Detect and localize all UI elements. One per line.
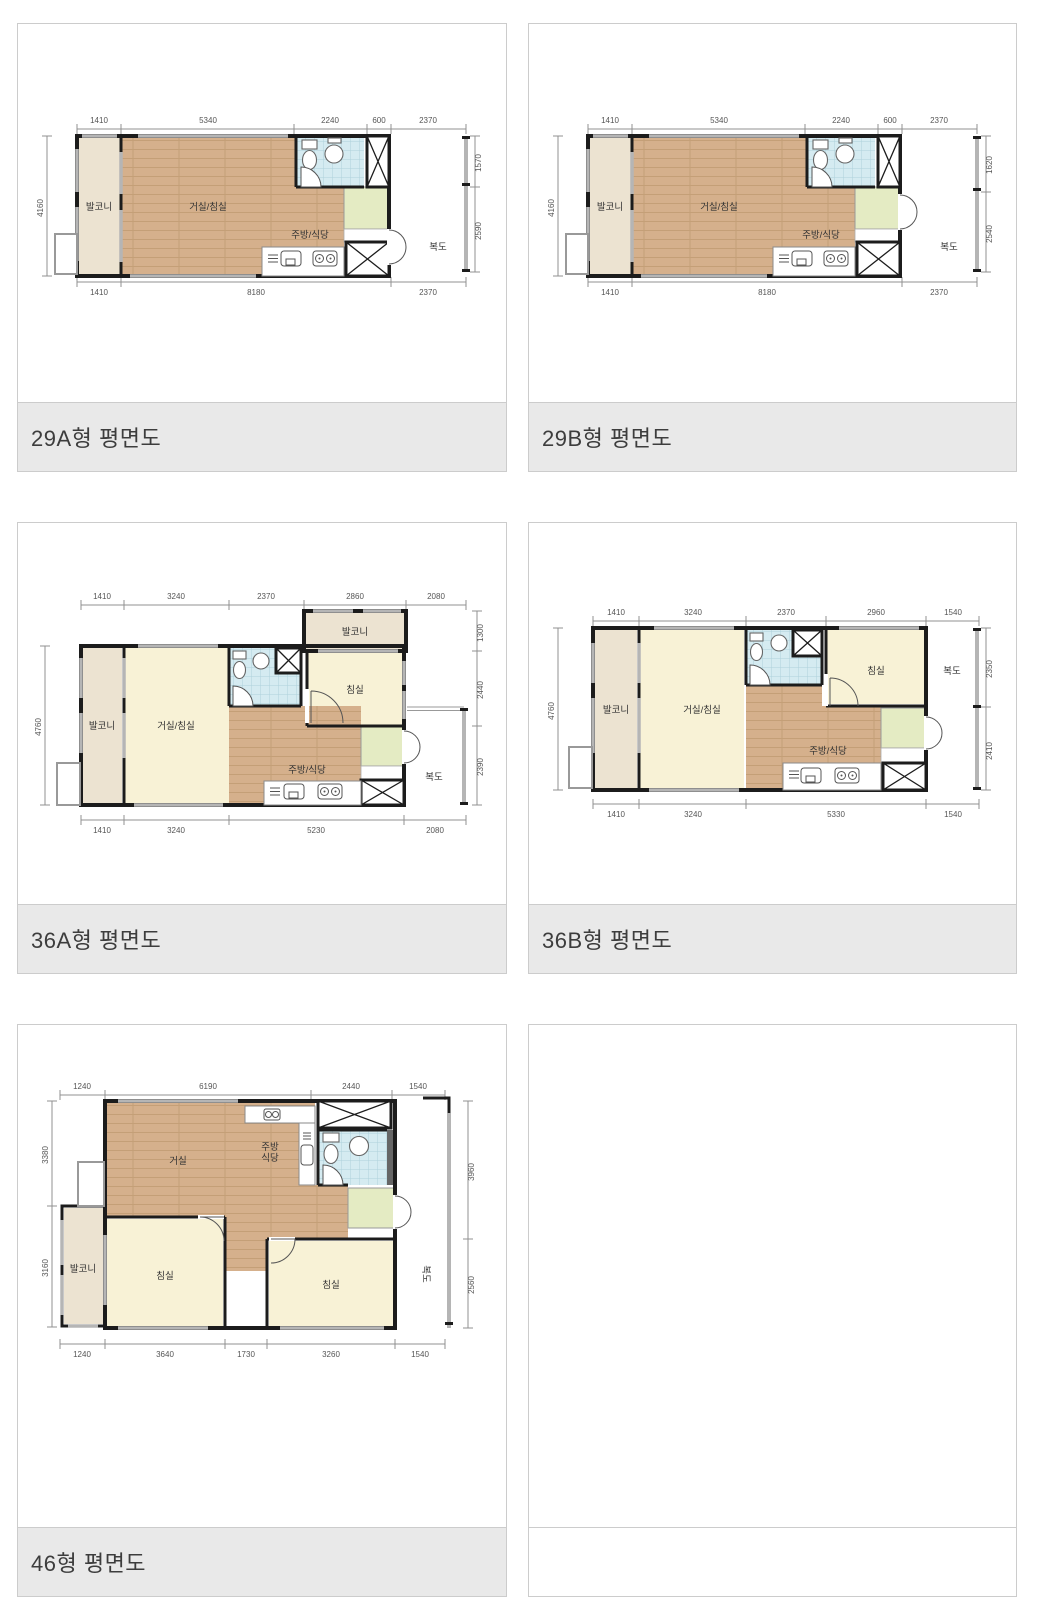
plan-caption-29b: 29B형 평면도 bbox=[529, 402, 1016, 471]
svg-text:2860: 2860 bbox=[346, 592, 364, 601]
room-label-kitchen: 주방/식당 bbox=[288, 765, 326, 776]
svg-text:1300: 1300 bbox=[476, 624, 485, 642]
room-label-bedroom1: 침실 bbox=[156, 1271, 173, 1282]
svg-text:1540: 1540 bbox=[944, 810, 962, 819]
corridor-wall bbox=[462, 136, 470, 272]
svg-text:2960: 2960 bbox=[867, 608, 885, 617]
dim-bottom: 1410 3240 5230 2080 bbox=[81, 815, 466, 835]
toilet-icon bbox=[750, 633, 763, 661]
dim-top: 1410 5340 2240 600 2370 bbox=[77, 116, 466, 134]
dim-left: 4160 bbox=[36, 136, 52, 276]
plan-image-36a: 1410 3240 2370 2860 2080 1410 3240 5230 … bbox=[18, 523, 506, 904]
svg-text:1410: 1410 bbox=[607, 810, 625, 819]
entry-step bbox=[344, 229, 389, 242]
svg-text:5330: 5330 bbox=[827, 810, 845, 819]
dim-bottom: 1410 3240 5330 1540 bbox=[593, 799, 979, 819]
kitchen-counter bbox=[783, 763, 881, 790]
svg-text:4760: 4760 bbox=[34, 718, 43, 736]
svg-text:2590: 2590 bbox=[474, 222, 483, 240]
dim-right: 2350 2410 bbox=[981, 628, 994, 790]
room-label-bedroom: 침실 bbox=[867, 666, 884, 677]
svg-text:5230: 5230 bbox=[307, 826, 325, 835]
dim-bottom: 1240 3640 1730 3260 1540 bbox=[60, 1339, 445, 1359]
dim-left: 3380 3160 bbox=[41, 1101, 57, 1327]
room-label-living: 거실/침실 bbox=[189, 202, 227, 213]
svg-text:2440: 2440 bbox=[476, 681, 485, 699]
room-label-balcony: 발코니 bbox=[86, 202, 112, 213]
floor-plan-46: 1240 6190 2440 1540 1240 3640 1730 3260 … bbox=[18, 1025, 506, 1527]
ac-unit-box bbox=[569, 747, 592, 788]
plan-image-46: 1240 6190 2440 1540 1240 3640 1730 3260 … bbox=[18, 1025, 506, 1527]
plan-card-46: 1240 6190 2440 1540 1240 3640 1730 3260 … bbox=[17, 1024, 507, 1597]
svg-text:1540: 1540 bbox=[411, 1350, 429, 1359]
svg-text:1410: 1410 bbox=[90, 288, 108, 297]
washbasin-icon bbox=[253, 653, 269, 669]
room-label-living: 거실/침실 bbox=[157, 721, 195, 732]
dim-right: 3960 2560 bbox=[463, 1101, 476, 1328]
room-label-bedroom2: 침실 bbox=[322, 1280, 339, 1291]
svg-text:2370: 2370 bbox=[419, 288, 437, 297]
svg-text:2240: 2240 bbox=[832, 116, 850, 125]
kitchen-counter bbox=[773, 247, 855, 276]
room-label-corridor: 복도 bbox=[943, 666, 961, 677]
wall-notch bbox=[78, 1162, 104, 1206]
dim-bottom: 1410 8180 2370 bbox=[588, 277, 977, 297]
svg-text:5340: 5340 bbox=[199, 116, 217, 125]
svg-text:1410: 1410 bbox=[93, 592, 111, 601]
corridor-wall bbox=[973, 136, 981, 272]
room-label-living: 거실/침실 bbox=[683, 705, 721, 716]
toilet-icon bbox=[323, 1133, 339, 1164]
empty-caption bbox=[529, 1527, 1016, 1596]
svg-text:2410: 2410 bbox=[985, 742, 994, 760]
kitchen-counter bbox=[264, 781, 361, 805]
room-label-kitchen-1: 주방 bbox=[261, 1142, 279, 1153]
room-label-corridor: 복도 bbox=[425, 772, 443, 783]
entry-step bbox=[881, 748, 926, 763]
dim-top: 1410 5340 2240 600 2370 bbox=[588, 116, 977, 134]
room-label-bedroom: 침실 bbox=[346, 685, 363, 696]
svg-text:1410: 1410 bbox=[601, 116, 619, 125]
floor-plan-29b: 1410 5340 2240 600 2370 1410 8180 2370 4… bbox=[529, 24, 1016, 402]
room-label-balcony: 발코니 bbox=[597, 202, 623, 213]
washbasin-icon bbox=[325, 138, 343, 163]
plan-image-36b: 1410 3240 2370 2960 1540 1410 3240 5330 … bbox=[529, 523, 1016, 904]
dim-right: 1620 2540 bbox=[981, 136, 994, 272]
svg-text:2370: 2370 bbox=[777, 608, 795, 617]
svg-text:2370: 2370 bbox=[930, 288, 948, 297]
dim-bottom: 1410 8180 2370 bbox=[77, 277, 466, 297]
svg-text:6190: 6190 bbox=[199, 1082, 217, 1091]
entry-step bbox=[855, 229, 900, 242]
washbasin-icon bbox=[836, 138, 854, 163]
ac-unit-box bbox=[566, 234, 588, 274]
dim-top: 1410 3240 2370 2960 1540 bbox=[593, 608, 979, 626]
svg-text:3240: 3240 bbox=[167, 592, 185, 601]
plan-caption-36a: 36A형 평면도 bbox=[18, 904, 506, 973]
svg-text:2370: 2370 bbox=[419, 116, 437, 125]
svg-text:1730: 1730 bbox=[237, 1350, 255, 1359]
svg-text:1410: 1410 bbox=[90, 116, 108, 125]
plan-caption-29a: 29A형 평면도 bbox=[18, 402, 506, 471]
svg-text:4160: 4160 bbox=[547, 199, 556, 217]
entry-door-icon bbox=[393, 1195, 411, 1229]
ac-unit-box bbox=[57, 763, 80, 805]
svg-text:3160: 3160 bbox=[41, 1259, 50, 1277]
toilet-icon bbox=[302, 140, 317, 170]
entry-floor bbox=[855, 187, 900, 229]
svg-text:8180: 8180 bbox=[758, 288, 776, 297]
svg-text:2370: 2370 bbox=[257, 592, 275, 601]
svg-text:1410: 1410 bbox=[601, 288, 619, 297]
svg-text:2540: 2540 bbox=[985, 225, 994, 243]
entry-floor bbox=[348, 1188, 395, 1228]
svg-text:4760: 4760 bbox=[547, 702, 556, 720]
svg-text:3240: 3240 bbox=[167, 826, 185, 835]
svg-text:3960: 3960 bbox=[467, 1163, 476, 1181]
plan-card-29a: 1410 5340 2240 600 2370 1410 8180 2370 4… bbox=[17, 23, 507, 472]
room-label-balcony: 발코니 bbox=[89, 721, 115, 732]
svg-text:2440: 2440 bbox=[342, 1082, 360, 1091]
empty-plan-area bbox=[529, 1025, 1016, 1527]
room-label-kitchen: 주방/식당 bbox=[809, 746, 847, 757]
svg-text:1240: 1240 bbox=[73, 1082, 91, 1091]
svg-text:3640: 3640 bbox=[156, 1350, 174, 1359]
room-label-corridor: 복도 bbox=[420, 1265, 431, 1283]
plan-image-29a: 1410 5340 2240 600 2370 1410 8180 2370 4… bbox=[18, 24, 506, 402]
svg-text:5340: 5340 bbox=[710, 116, 728, 125]
svg-text:3240: 3240 bbox=[684, 608, 702, 617]
svg-text:3380: 3380 bbox=[41, 1146, 50, 1164]
plan-caption-36b: 36B형 평면도 bbox=[529, 904, 1016, 973]
svg-text:8180: 8180 bbox=[247, 288, 265, 297]
room-label-corridor: 복도 bbox=[940, 242, 958, 253]
corridor-wall bbox=[973, 628, 981, 790]
svg-text:1540: 1540 bbox=[409, 1082, 427, 1091]
plan-caption-46: 46형 평면도 bbox=[18, 1527, 506, 1596]
svg-text:2240: 2240 bbox=[321, 116, 339, 125]
room-label-kitchen: 주방/식당 bbox=[291, 230, 329, 241]
dim-top: 1410 3240 2370 2860 2080 bbox=[81, 592, 466, 610]
dim-left: 4760 bbox=[34, 646, 50, 805]
dim-right: 1300 2440 2390 bbox=[472, 611, 485, 805]
plan-card-36a: 1410 3240 2370 2860 2080 1410 3240 5230 … bbox=[17, 522, 507, 974]
svg-text:1240: 1240 bbox=[73, 1350, 91, 1359]
entry-floor bbox=[881, 708, 926, 748]
dim-right: 1570 2590 bbox=[470, 136, 483, 272]
svg-text:4160: 4160 bbox=[36, 199, 45, 217]
washbasin-icon bbox=[350, 1137, 369, 1156]
shaft-x-icon bbox=[318, 1101, 391, 1128]
dim-left: 4160 bbox=[547, 136, 563, 276]
svg-text:3260: 3260 bbox=[322, 1350, 340, 1359]
room-label-balcony: 발코니 bbox=[70, 1264, 96, 1275]
svg-text:1620: 1620 bbox=[985, 156, 994, 174]
svg-text:3240: 3240 bbox=[684, 810, 702, 819]
entry-door-icon bbox=[924, 716, 942, 750]
room-label-corridor: 복도 bbox=[429, 242, 447, 253]
svg-text:1410: 1410 bbox=[607, 608, 625, 617]
svg-text:2370: 2370 bbox=[930, 116, 948, 125]
floor-plan-36a: 1410 3240 2370 2860 2080 1410 3240 5230 … bbox=[18, 523, 506, 904]
svg-text:2080: 2080 bbox=[427, 592, 445, 601]
entry-door-icon bbox=[402, 730, 420, 764]
plan-card-36b: 1410 3240 2370 2960 1540 1410 3240 5330 … bbox=[528, 522, 1017, 974]
svg-text:1570: 1570 bbox=[474, 154, 483, 172]
dim-top: 1240 6190 2440 1540 bbox=[60, 1082, 445, 1100]
plan-card-29b: 1410 5340 2240 600 2370 1410 8180 2370 4… bbox=[528, 23, 1017, 472]
floor-plan-grid: 1410 5340 2240 600 2370 1410 8180 2370 4… bbox=[0, 0, 1050, 1618]
room-label-kitchen: 주방/식당 bbox=[802, 230, 840, 241]
ac-unit-box bbox=[55, 234, 77, 274]
toilet-icon bbox=[233, 651, 246, 679]
corridor-wall bbox=[423, 1098, 453, 1328]
entry-step bbox=[361, 766, 404, 780]
entry-door-icon bbox=[387, 229, 406, 265]
room-label-living: 거실/침실 bbox=[700, 202, 738, 213]
svg-text:2080: 2080 bbox=[426, 826, 444, 835]
washbasin-icon bbox=[771, 635, 787, 651]
entry-door-icon bbox=[898, 194, 917, 230]
plan-image-29b: 1410 5340 2240 600 2370 1410 8180 2370 4… bbox=[529, 24, 1016, 402]
floor-plan-36b: 1410 3240 2370 2960 1540 1410 3240 5330 … bbox=[529, 523, 1016, 904]
dim-left: 4760 bbox=[547, 628, 563, 790]
kitchen-counter bbox=[262, 247, 344, 276]
svg-text:1540: 1540 bbox=[944, 608, 962, 617]
svg-text:1410: 1410 bbox=[93, 826, 111, 835]
room-label-kitchen-2: 식당 bbox=[261, 1153, 279, 1164]
room-label-living: 거실 bbox=[169, 1156, 186, 1167]
svg-text:2390: 2390 bbox=[476, 758, 485, 776]
entry-floor bbox=[361, 726, 404, 766]
svg-text:600: 600 bbox=[372, 116, 386, 125]
svg-text:2560: 2560 bbox=[467, 1276, 476, 1294]
room-label-balcony2: 발코니 bbox=[342, 627, 368, 638]
empty-card bbox=[528, 1024, 1017, 1597]
toilet-icon bbox=[813, 140, 828, 170]
svg-text:2350: 2350 bbox=[985, 660, 994, 678]
bathroom-duct bbox=[387, 1130, 393, 1185]
room-label-balcony: 발코니 bbox=[603, 705, 629, 716]
floor-plan-29a: 1410 5340 2240 600 2370 1410 8180 2370 4… bbox=[18, 24, 506, 402]
svg-text:600: 600 bbox=[883, 116, 897, 125]
entry-floor bbox=[344, 187, 389, 229]
